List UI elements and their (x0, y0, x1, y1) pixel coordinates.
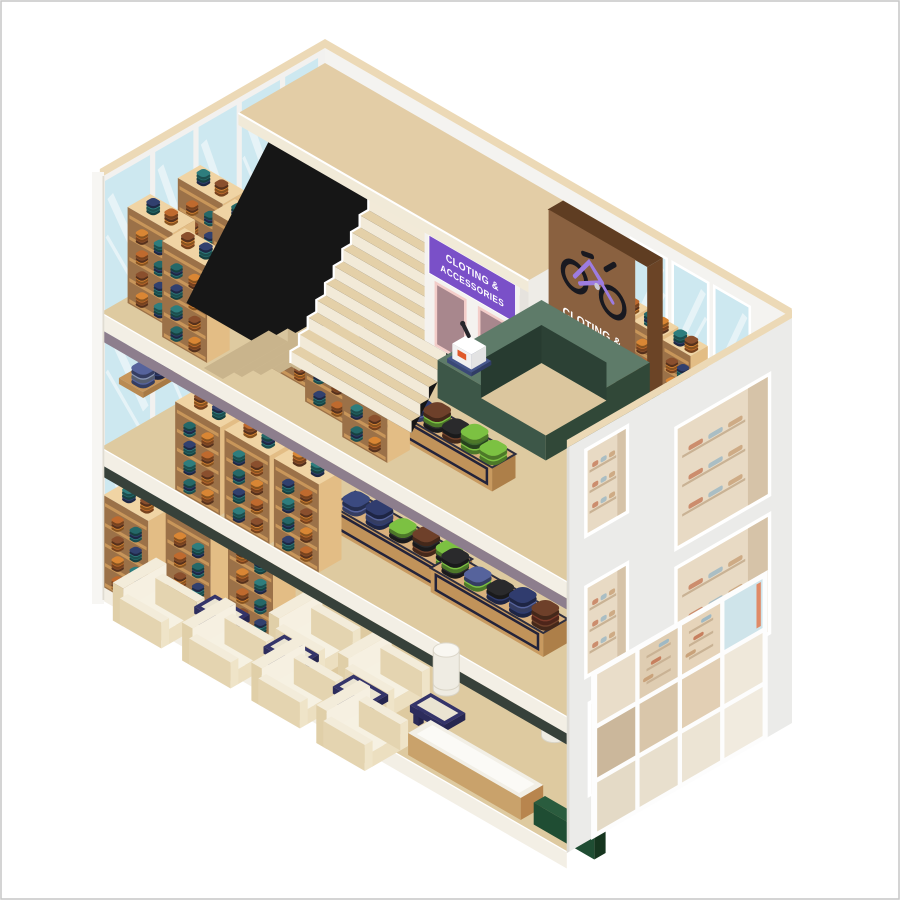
store-illustration-canvas: CLOTING & ACCESSORIES CLOTING & ACCESSOR… (0, 0, 900, 900)
store-cutaway-illustration: CLOTING & ACCESSORIES CLOTING & ACCESSOR… (0, 0, 900, 900)
bin (433, 643, 459, 690)
wall-cross-section (92, 172, 104, 604)
building: CLOTING & ACCESSORIES CLOTING & ACCESSOR… (92, 39, 792, 869)
